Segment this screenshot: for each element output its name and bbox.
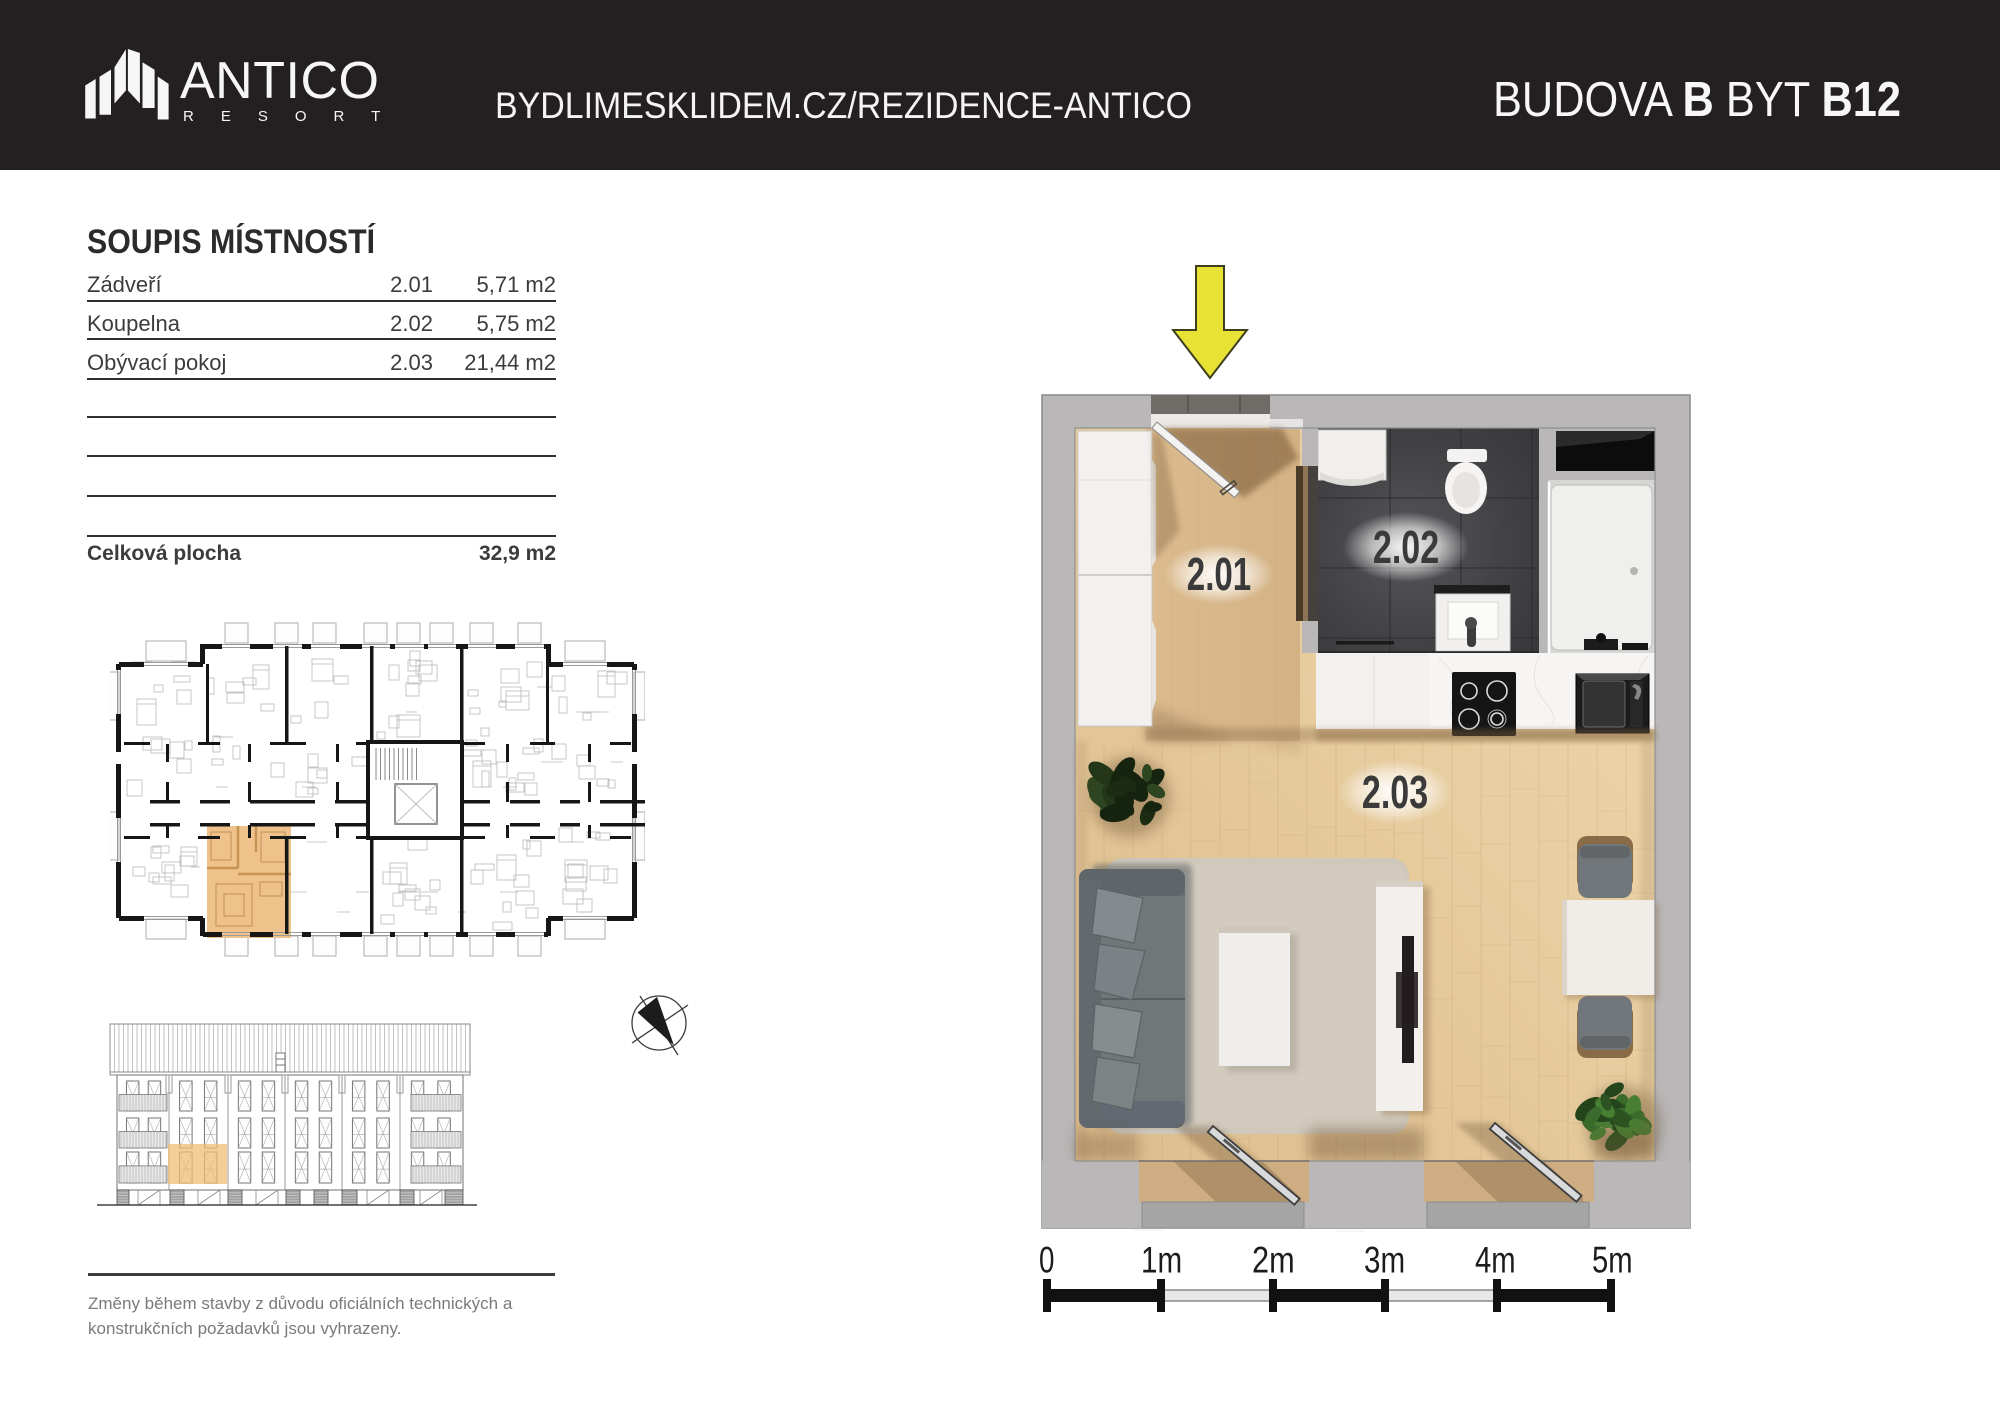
svg-text:4m: 4m [1475,1240,1516,1281]
svg-text:5m: 5m [1592,1240,1633,1281]
svg-text:2.02: 2.02 [1373,521,1439,573]
svg-text:2m: 2m [1252,1240,1295,1281]
svg-text:3m: 3m [1364,1240,1405,1281]
svg-text:0: 0 [1039,1239,1054,1281]
svg-text:2.03: 2.03 [1362,766,1428,818]
svg-text:2.01: 2.01 [1187,550,1251,600]
svg-text:1m: 1m [1141,1240,1182,1281]
